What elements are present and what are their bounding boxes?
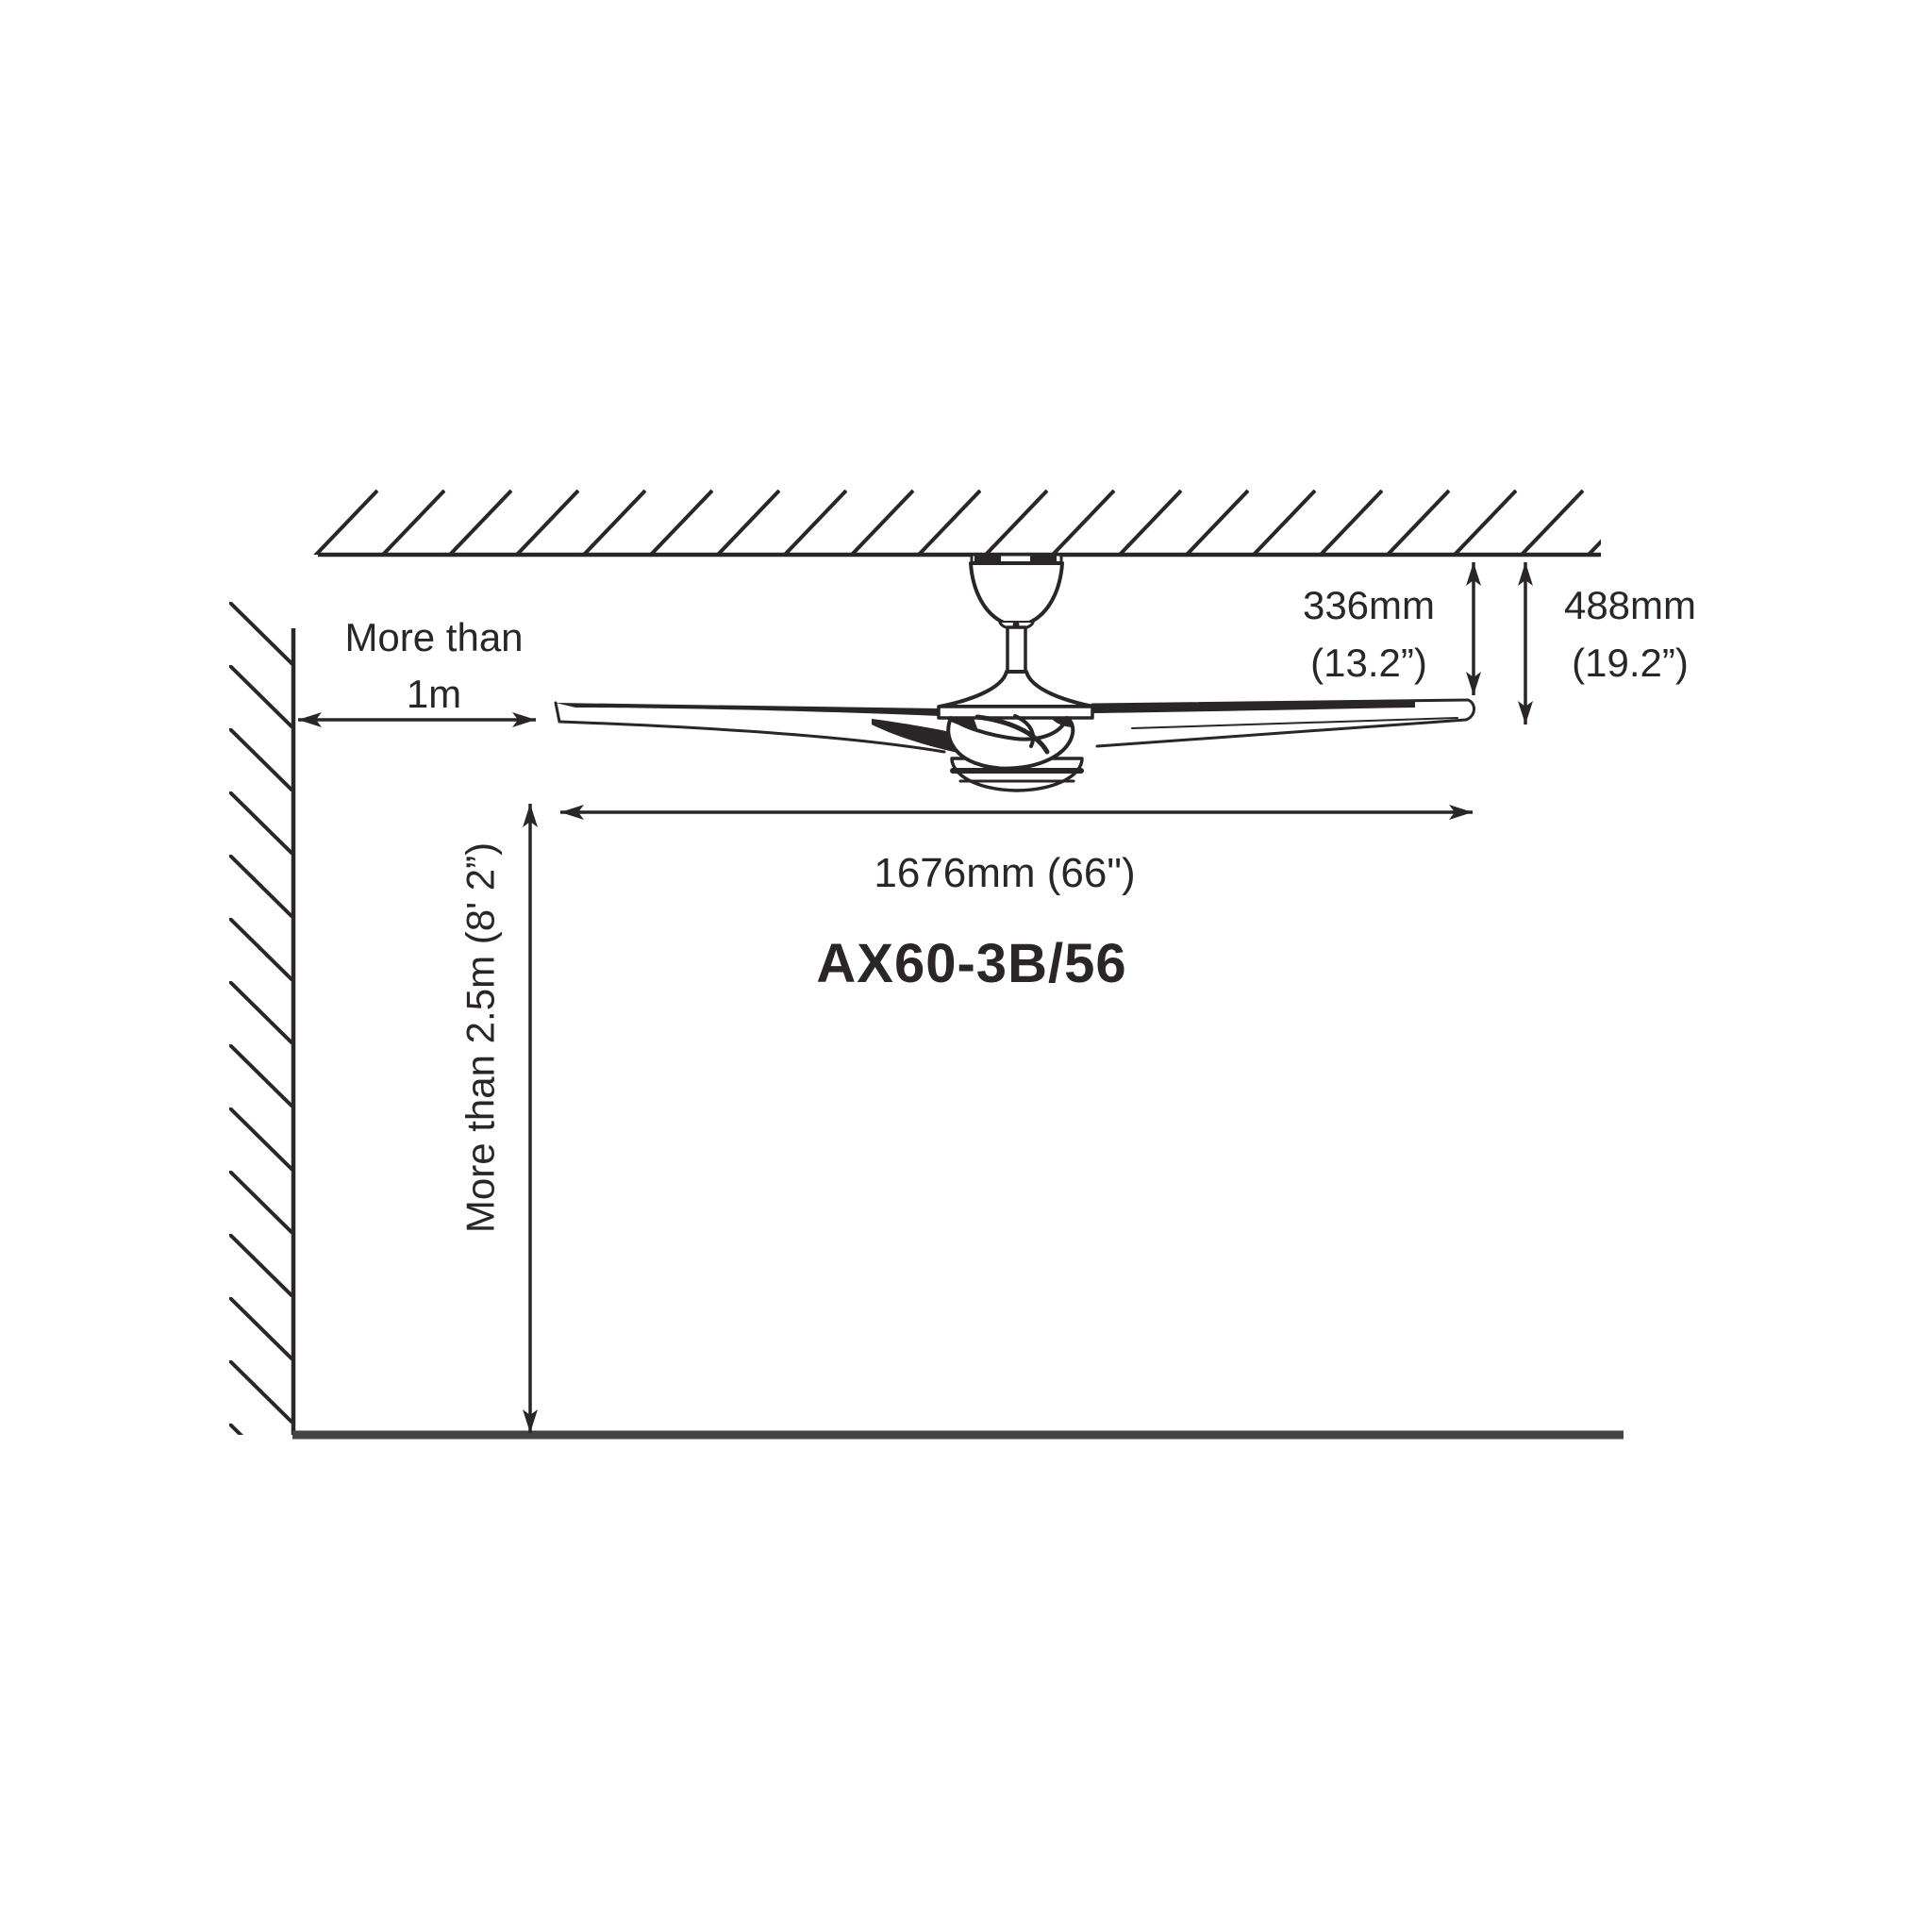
fan-installation-diagram: More than 1m 336mm (13.2”) 488mm (19.2”)… [0, 0, 1932, 1932]
wall-clearance-line2: 1m [311, 666, 557, 723]
drop-to-blades-label: 336mm (13.2”) [1246, 576, 1491, 691]
wall [229, 602, 293, 1435]
drop-to-blades-imperial: (13.2”) [1246, 634, 1491, 691]
drop-overall-imperial: (19.2”) [1507, 634, 1753, 691]
floor-clearance-label: More than 2.5m (8' 2”) [452, 842, 509, 1233]
ceiling-hatch [311, 490, 1601, 555]
blade-span-label: 1676mm (66") [816, 844, 1193, 902]
ceiling [311, 490, 1601, 555]
downrod [1008, 627, 1025, 672]
wall-hatch [229, 602, 293, 1435]
drop-overall-metric: 488mm [1507, 576, 1753, 634]
wall-clearance-line1: More than [311, 609, 557, 666]
drop-overall-label: 488mm (19.2”) [1507, 576, 1753, 691]
model-number-label: AX60-3B/56 [736, 935, 1207, 992]
canopy [971, 555, 1062, 629]
wall-clearance-label: More than 1m [311, 609, 557, 723]
fan-blade-right [1092, 700, 1474, 746]
drop-to-blades-metric: 336mm [1246, 576, 1491, 634]
motor-housing-bell [940, 672, 1093, 707]
